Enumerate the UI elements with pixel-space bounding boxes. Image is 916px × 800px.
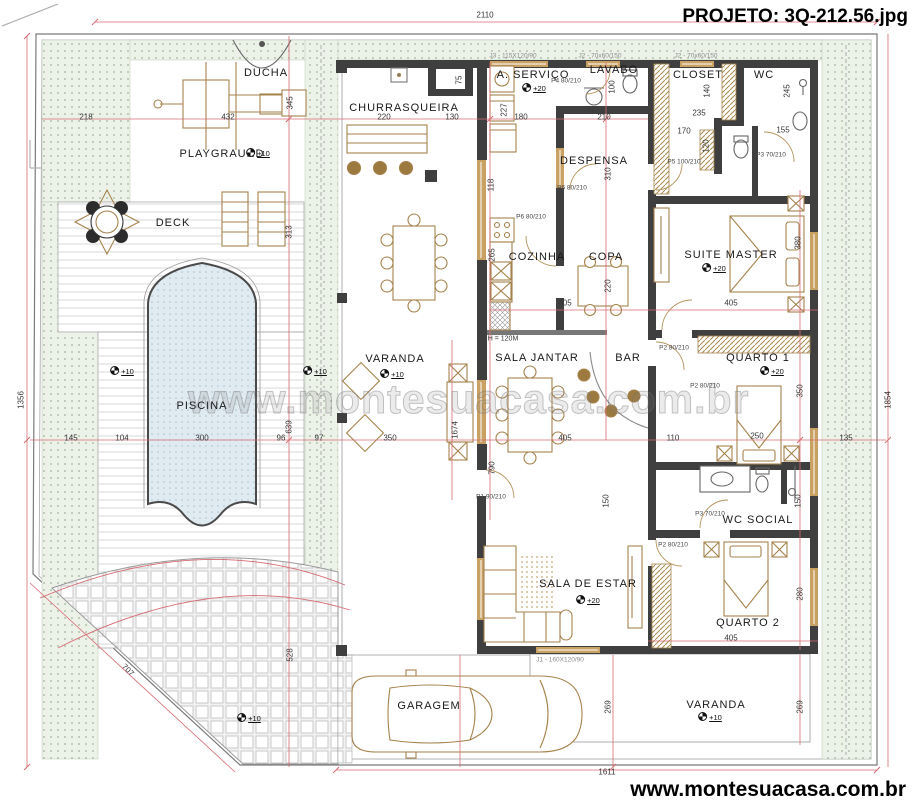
- pool: [144, 258, 260, 526]
- plan-drawing: [0, 0, 916, 800]
- floorplan-sheet: www.montesuacasa.com.br DUCHAPLAYGRAUNDD…: [0, 0, 916, 800]
- project-title: PROJETO: 3Q-212.56.jpg: [682, 6, 908, 28]
- site-url: www.montesuacasa.com.br: [630, 778, 906, 800]
